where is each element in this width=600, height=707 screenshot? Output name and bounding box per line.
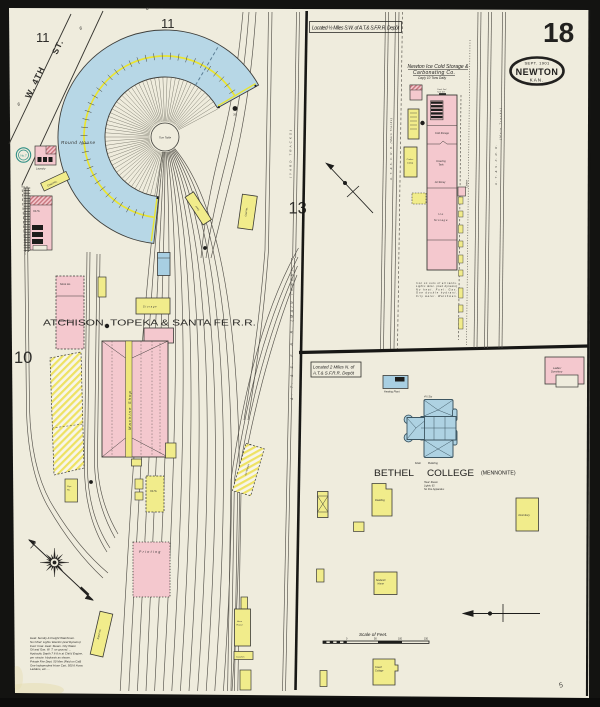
svg-text:Cottage: Cottage xyxy=(375,670,384,673)
svg-text:No Fire Apparatus: No Fire Apparatus xyxy=(424,488,445,491)
svg-text:Round House: Round House xyxy=(61,140,96,145)
svg-text:Pipe: Pipe xyxy=(67,486,72,488)
svg-text:11: 11 xyxy=(161,16,175,31)
svg-text:Main: Main xyxy=(415,461,422,465)
svg-text:Machine Shop: Machine Shop xyxy=(127,390,132,430)
svg-text:36: 36 xyxy=(233,113,237,117)
svg-text:100: 100 xyxy=(398,638,403,641)
svg-text:Heating Plant: Heating Plant xyxy=(384,390,400,394)
svg-text:City water. Watchman.: City water. Watchman. xyxy=(416,295,457,298)
svg-text:Laundry: Laundry xyxy=(36,167,46,171)
svg-text:COLLEGE: COLLEGE xyxy=(427,468,474,478)
svg-text:Cistern: Cistern xyxy=(465,179,469,188)
svg-text:Located 2 Miles N. of: Located 2 Miles N. of xyxy=(313,365,355,370)
svg-text:House: House xyxy=(237,625,244,627)
svg-text:Storage: Storage xyxy=(143,306,157,309)
svg-text:Tank: Tank xyxy=(438,164,444,167)
svg-text:SEPT. 1901: SEPT. 1901 xyxy=(524,61,550,66)
svg-text:(MENNONITE): (MENNONITE) xyxy=(481,471,516,477)
svg-text:Carbo-: Carbo- xyxy=(407,159,414,161)
svg-text:No.7: No.7 xyxy=(20,154,27,158)
svg-text:A. T. & S. F. R. R. (Main Tr: A. T. & S. F. R. R. (Main Tracks) xyxy=(389,118,393,181)
svg-text:4½ Sty: 4½ Sty xyxy=(424,395,433,399)
svg-text:Dwelling: Dwelling xyxy=(375,498,385,502)
svg-text:Building: Building xyxy=(428,461,438,465)
svg-text:KAN.: KAN. xyxy=(530,78,545,83)
svg-text:nating: nating xyxy=(407,162,414,165)
svg-text:ATCHISON, TOPEKA & SANTA FE R.: ATCHISON, TOPEKA & SANTA FE R.R. xyxy=(43,319,256,328)
svg-text:Oil Ho.: Oil Ho. xyxy=(33,210,41,213)
svg-text:Home: Home xyxy=(378,583,385,586)
svg-text:11: 11 xyxy=(36,30,50,45)
svg-text:A.T.& S.F.R.R. Depōt: A.T.& S.F.R.R. Depōt xyxy=(312,371,355,376)
svg-text:BETHEL: BETHEL xyxy=(374,468,414,478)
svg-text:NEWTON: NEWTON xyxy=(516,67,559,77)
svg-text:Dormitory: Dormitory xyxy=(519,513,531,517)
svg-text:1st Storey: 1st Storey xyxy=(435,181,447,184)
svg-text:Cold Storage: Cold Storage xyxy=(435,132,450,135)
svg-text:Ho.: Ho. xyxy=(67,490,71,492)
svg-text:Scale of Feet.: Scale of Feet. xyxy=(359,632,387,637)
svg-text:150: 150 xyxy=(424,638,429,641)
svg-text:Ladies’: Ladies’ xyxy=(553,366,562,370)
svg-text:Oil Ho.: Oil Ho. xyxy=(150,490,158,493)
svg-text:18: 18 xyxy=(543,17,574,48)
svg-text:Storage: Storage xyxy=(434,218,448,222)
svg-text:Cap’y 10 Tons Daily: Cap’y 10 Tons Daily xyxy=(418,76,447,80)
svg-text:Printing: Printing xyxy=(139,550,162,554)
svg-text:10: 10 xyxy=(14,349,32,367)
svg-text:Tank 3rd: Tank 3rd xyxy=(437,91,446,93)
svg-text:Located ½ Miles S.W. of A.T.&: Located ½ Miles S.W. of A.T.& S.F.R.R. D… xyxy=(312,25,400,32)
svg-text:Dormitory: Dormitory xyxy=(551,370,563,374)
svg-text:(YARD TRACKS): (YARD TRACKS) xyxy=(289,130,293,178)
svg-text:A. T. & S. F. R. R.: A. T. & S. F. R. R. xyxy=(494,145,498,186)
svg-text:Coaches: Coaches xyxy=(236,657,246,659)
svg-text:Ice: Ice xyxy=(438,212,444,216)
svg-text:Ladders, etc. ...: Ladders, etc. ... xyxy=(30,667,50,671)
svg-text:Hose: Hose xyxy=(237,621,243,623)
svg-text:Turn Table: Turn Table xyxy=(159,136,172,140)
svg-text:Store Ho.: Store Ho. xyxy=(60,282,71,286)
